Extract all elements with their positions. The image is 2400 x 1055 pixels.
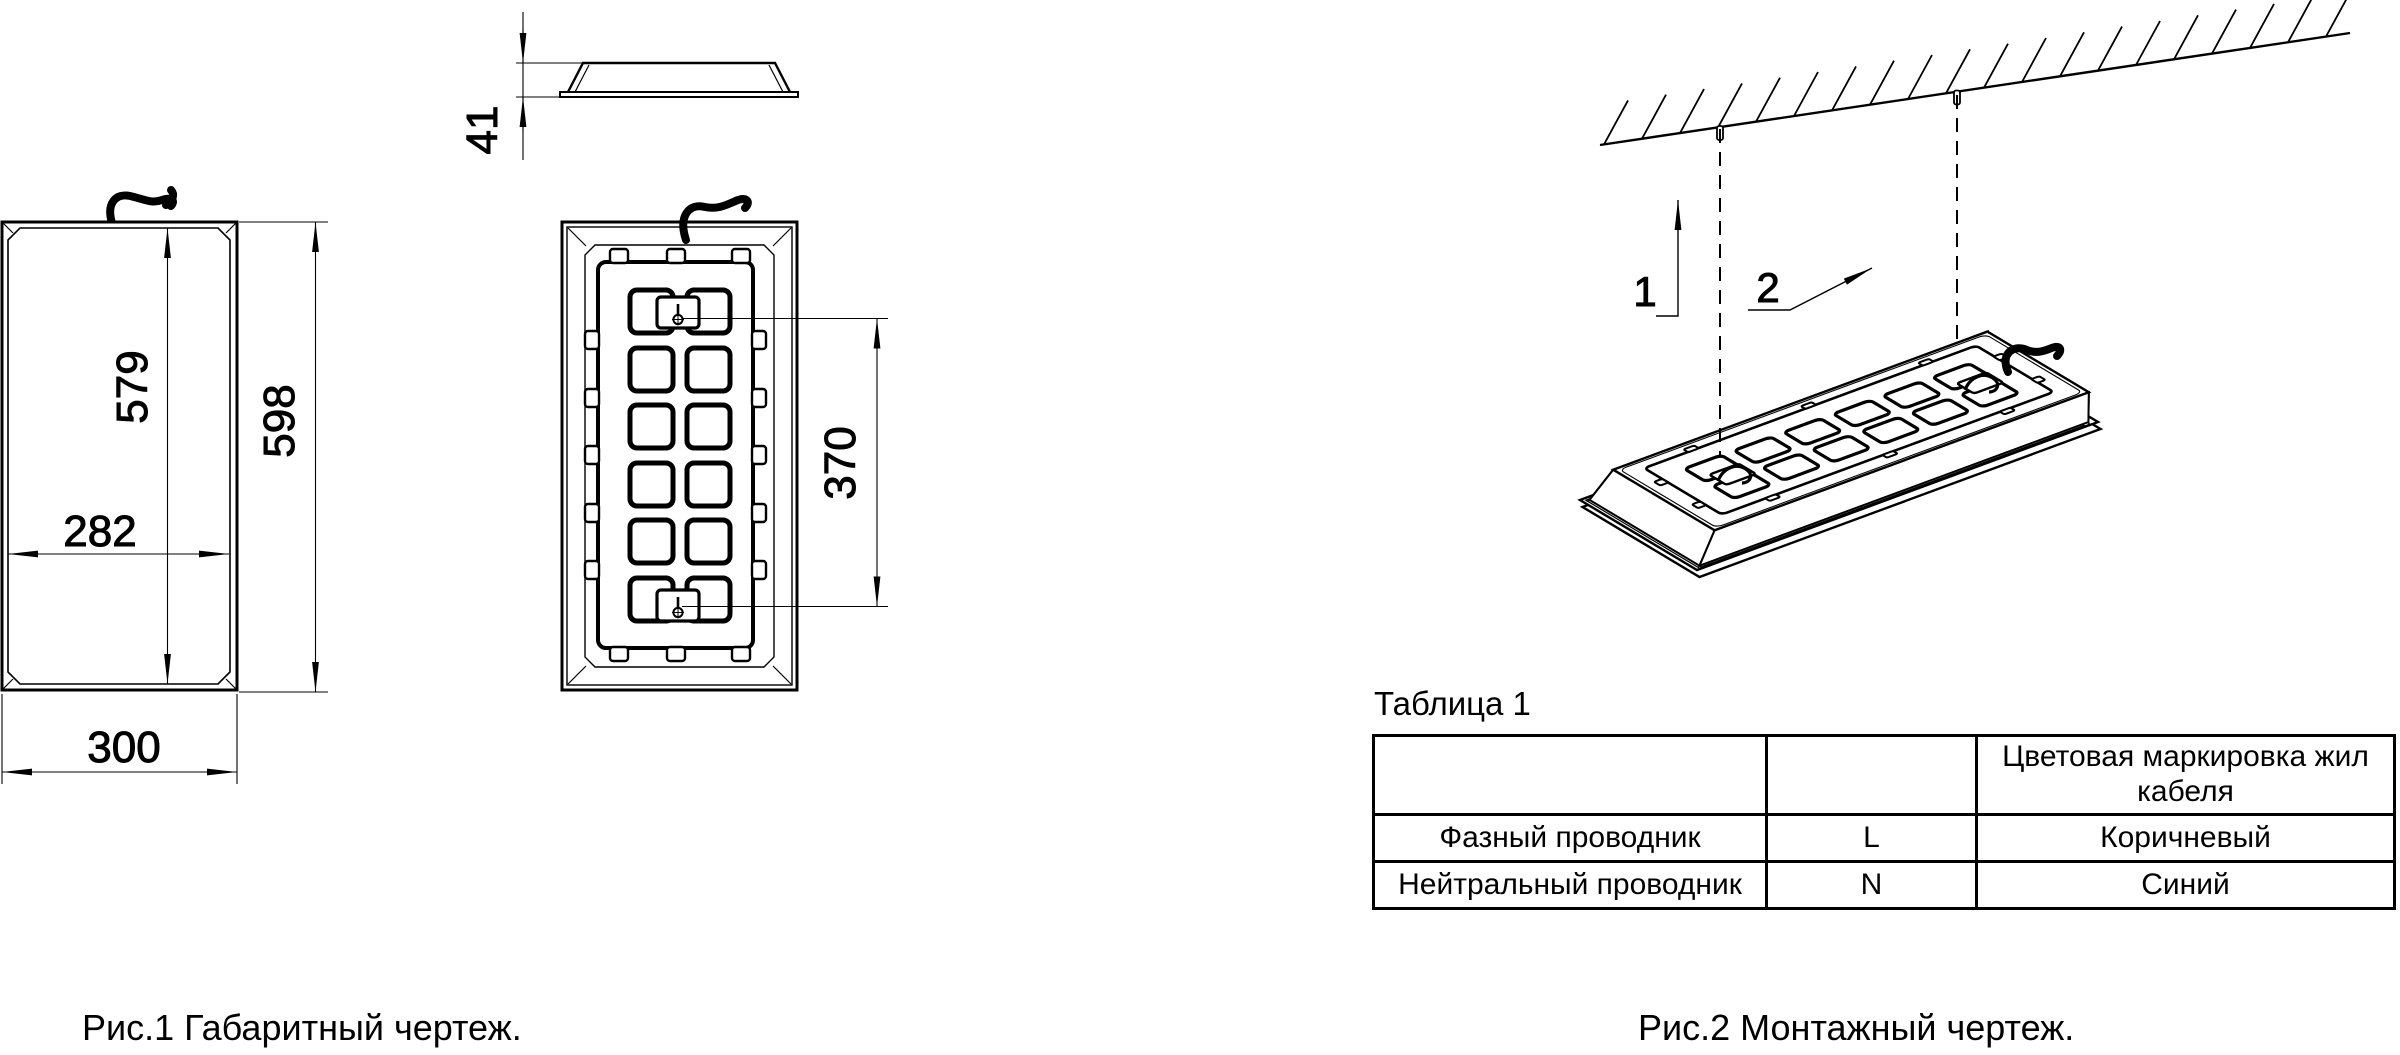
figure1-caption: Рис.1 Габаритный чертеж. xyxy=(82,1007,522,1049)
figure2-caption: Рис.2 Монтажный чертеж. xyxy=(1638,1007,2074,1049)
dim-front-outer-height: 598 xyxy=(239,222,328,692)
cell-conductor-code: N xyxy=(1767,862,1977,909)
header-cell-color-marking: Цветовая маркировка жил кабеля xyxy=(1977,736,2395,815)
header-cell-blank-2 xyxy=(1767,736,1977,815)
callout-1-label: 1 xyxy=(1633,268,1656,315)
dim-front-outer-width: 300 xyxy=(2,694,237,784)
profile-view: 41 xyxy=(458,12,798,160)
cell-conductor-code: L xyxy=(1767,815,1977,862)
table-row-phase: Фазный проводник L Коричневый xyxy=(1374,815,2395,862)
dim-front-outer-width-value: 300 xyxy=(87,723,160,772)
callout-1: 1 xyxy=(1633,200,1678,316)
dim-front-inner-width-value: 282 xyxy=(63,507,136,556)
cell-conductor-color: Коричневый xyxy=(1977,815,2395,862)
keyhole-slot-bottom xyxy=(657,590,699,621)
back-view: 370 xyxy=(562,199,888,690)
table-row-neutral: Нейтральный проводник N Синий xyxy=(1374,862,2395,909)
power-cord xyxy=(110,195,173,223)
cell-conductor-name: Фазный проводник xyxy=(1374,815,1767,862)
callout-2: 2 xyxy=(1748,264,1872,311)
mounting-view: 1 2 xyxy=(1580,0,2350,577)
table-header-row: Цветовая маркировка жил кабеля xyxy=(1374,736,2395,815)
wire-marking-table-block: Таблица 1 Цветовая маркировка жил кабеля… xyxy=(1372,685,2393,910)
wire-marking-table: Цветовая маркировка жил кабеля Фазный пр… xyxy=(1372,734,2396,910)
table-title: Таблица 1 xyxy=(1374,685,2393,723)
dim-profile-height-value: 41 xyxy=(458,106,507,155)
keyhole-slot-top xyxy=(657,297,699,328)
dim-profile-height: 41 xyxy=(458,12,586,160)
front-view: 579 598 282 300 xyxy=(2,190,328,784)
header-cell-blank-1 xyxy=(1374,736,1767,815)
dim-front-outer-height-value: 598 xyxy=(255,384,304,457)
callout-2-label: 2 xyxy=(1756,264,1779,311)
panel-3d xyxy=(1580,332,2101,577)
dim-front-inner-height-value: 579 xyxy=(108,350,157,423)
cell-conductor-name: Нейтральный проводник xyxy=(1374,862,1767,909)
technical-drawing-sheet: 41 579 598 282 xyxy=(0,0,2400,1055)
ceiling xyxy=(1600,0,2350,145)
dim-mount-hole-spacing-value: 370 xyxy=(816,426,865,499)
cell-conductor-color: Синий xyxy=(1977,862,2395,909)
